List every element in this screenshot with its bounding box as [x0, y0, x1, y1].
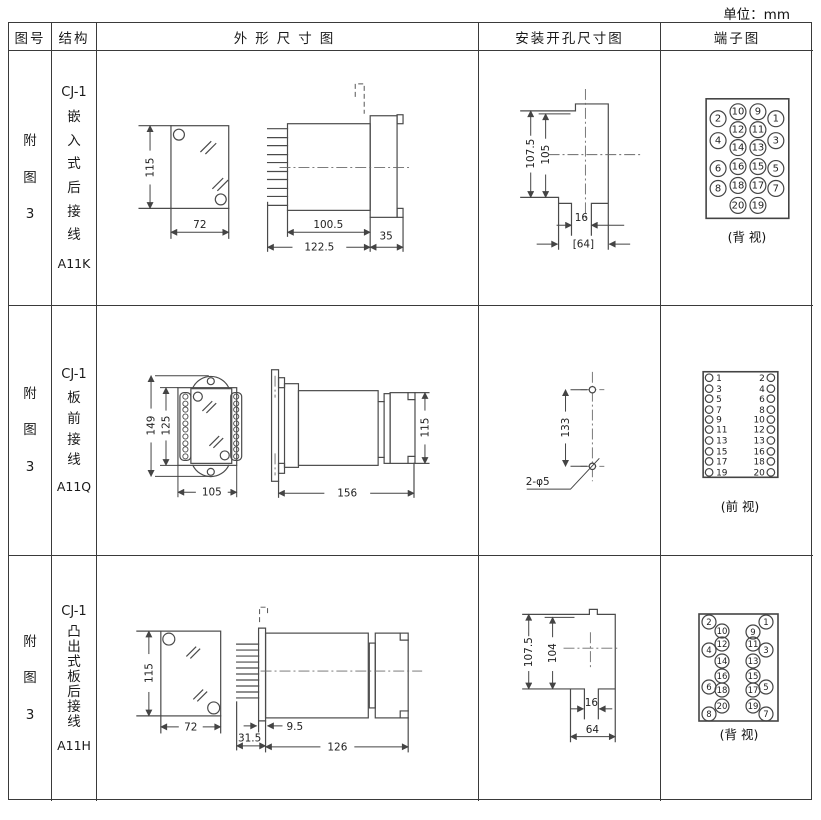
outline-cell-row3: 115 72 9.5 31.5 126: [97, 556, 479, 801]
dimensions: 107.5 105 16 [64]: [525, 111, 630, 251]
structure-cell-row3: CJ-1 凸出式板后接线 A11H: [52, 556, 97, 801]
structure-type: 凸出式板后接线: [66, 625, 82, 731]
svg-text:4: 4: [715, 136, 721, 147]
header-terminal: 端子图: [661, 23, 813, 51]
svg-text:6: 6: [759, 395, 765, 405]
svg-text:7: 7: [773, 183, 779, 194]
mounting-drawing-row3: 107.5 104 16 64: [479, 556, 660, 801]
structure-model: CJ-1: [61, 367, 86, 382]
dimensions: 115 72 100.5 122.5 35: [145, 126, 404, 254]
structure-type: 嵌入式后接线: [66, 106, 82, 248]
svg-text:10: 10: [732, 107, 745, 118]
view-caption: (前 视): [721, 499, 760, 514]
svg-text:11: 11: [748, 640, 759, 650]
svg-text:16: 16: [717, 672, 728, 682]
dim-outer: 107.5: [523, 637, 535, 667]
svg-text:7: 7: [763, 710, 768, 720]
dim-pin-length: 31.5: [238, 732, 261, 744]
svg-text:1: 1: [773, 114, 779, 125]
dim-width: 105: [202, 487, 222, 499]
unit-label: 单位：mm: [723, 3, 790, 23]
cutout-outline: [523, 609, 615, 741]
svg-text:9: 9: [750, 628, 755, 638]
dim-height: 115: [143, 663, 155, 683]
svg-text:3: 3: [773, 136, 779, 147]
mounting-cell-row1: 107.5 105 16 [64]: [479, 51, 661, 306]
mounting-cell-row3: 107.5 104 16 64: [479, 556, 661, 801]
terminal-cell-row1: 2 4 6 8 10 12 14 16 18 20 9 11 13 15 17 …: [661, 51, 813, 306]
terminal-strip-left: [183, 394, 188, 459]
structure-model: CJ-1: [61, 604, 86, 619]
svg-text:20: 20: [717, 702, 728, 712]
dim-gap: 9.5: [287, 721, 304, 733]
svg-text:16: 16: [753, 448, 765, 458]
front-view: [178, 376, 242, 476]
mounting-drawing-row2: 133 2-φ5: [479, 306, 660, 555]
structure-code: A11K: [58, 256, 91, 271]
terminals: 2 4 6 8 10 12 14 16 18 20 9 11 13 15 17 …: [710, 104, 784, 214]
figure-label: 附图3: [21, 376, 39, 485]
svg-text:13: 13: [716, 437, 727, 447]
terminals: 2 4 6 8 10 12 14 16 18 20 9 11 13 15 17 …: [702, 615, 773, 721]
header-figure: 图号: [9, 23, 52, 51]
svg-text:12: 12: [717, 640, 728, 650]
svg-text:18: 18: [732, 180, 745, 191]
pins: [268, 129, 288, 206]
svg-text:7: 7: [716, 406, 722, 416]
svg-text:20: 20: [732, 200, 745, 211]
outline-drawing-row3: 115 72 9.5 31.5 126: [97, 556, 478, 801]
header-structure: 结构: [52, 23, 97, 51]
structure-code: A11Q: [57, 479, 91, 494]
svg-text:1: 1: [716, 374, 722, 384]
svg-text:11: 11: [752, 125, 765, 136]
svg-text:15: 15: [752, 162, 765, 173]
dim-side-height: 115: [419, 418, 431, 438]
svg-text:10: 10: [753, 416, 765, 426]
terminal-diagram-row1: 2 4 6 8 10 12 14 16 18 20 9 11 13 15 17 …: [661, 51, 813, 305]
dim-slot: 16: [575, 212, 588, 224]
center-marks: [564, 632, 621, 668]
figure-label: 附图3: [21, 123, 39, 232]
svg-text:14: 14: [717, 657, 728, 667]
hole-spec: 2-φ5: [526, 476, 550, 488]
svg-text:6: 6: [715, 164, 721, 175]
svg-text:13: 13: [748, 657, 759, 667]
mounting-drawing-row1: 107.5 105 16 [64]: [479, 51, 660, 305]
dim-hole-spacing: 133: [560, 418, 572, 438]
dim-flange: 35: [379, 230, 392, 242]
terminal-cell-row3: 2 4 6 8 10 12 14 16 18 20 9 11 13 15 17 …: [661, 556, 813, 801]
structure-model: CJ-1: [61, 85, 86, 100]
handle-phantom: [260, 607, 268, 622]
svg-text:19: 19: [752, 200, 765, 211]
dim-cutout-width: [64]: [573, 239, 594, 251]
svg-text:17: 17: [752, 180, 765, 191]
mounting-cell-row2: 133 2-φ5: [479, 306, 661, 556]
dim-height: 115: [145, 158, 157, 178]
figure-cell-row1: 附图3: [9, 51, 52, 306]
svg-text:2: 2: [706, 618, 711, 628]
terminals: 12 34 56 78 910 1112 1313 1516 1718 1920: [705, 374, 774, 479]
svg-text:1: 1: [763, 618, 768, 628]
dim-width: 72: [184, 721, 197, 733]
side-view: [237, 628, 409, 752]
outline-drawing-row1: 115 72 100.5 122.5 35: [97, 51, 478, 305]
svg-text:9: 9: [755, 107, 761, 118]
outline-cell-row1: 115 72 100.5 122.5 35: [97, 51, 479, 306]
dim-depth-total: 122.5: [304, 242, 334, 254]
structure-cell-row1: CJ-1 嵌入式后接线 A11K: [52, 51, 97, 306]
svg-text:2: 2: [759, 374, 765, 384]
side-view: [272, 370, 429, 497]
dim-inner-height: 125: [160, 416, 172, 436]
dim-depth: 156: [337, 488, 357, 500]
svg-text:17: 17: [716, 458, 727, 468]
pins: [237, 644, 259, 698]
svg-text:5: 5: [773, 164, 779, 175]
svg-text:15: 15: [748, 672, 759, 682]
svg-text:5: 5: [716, 395, 722, 405]
svg-text:19: 19: [748, 702, 759, 712]
dim-outer-height: 149: [146, 416, 158, 436]
dimensions: 133 2-φ5: [526, 390, 600, 489]
header-mounting: 安装开孔尺寸图: [479, 23, 661, 51]
svg-text:9: 9: [716, 416, 722, 426]
svg-text:17: 17: [748, 686, 759, 696]
svg-text:4: 4: [706, 646, 711, 656]
structure-code: A11H: [57, 738, 91, 753]
dim-outer: 107.5: [525, 139, 537, 169]
svg-text:16: 16: [732, 162, 745, 173]
svg-text:3: 3: [763, 646, 768, 656]
svg-text:18: 18: [717, 686, 728, 696]
svg-text:13: 13: [753, 437, 764, 447]
cutout-outline: [521, 104, 609, 249]
svg-text:13: 13: [752, 143, 765, 154]
outline-drawing-row2: 149 125 105 115 156: [97, 306, 478, 555]
dim-inner: 105: [540, 145, 552, 165]
handle-phantom: [355, 84, 364, 114]
figure-cell-row2: 附图3: [9, 306, 52, 556]
figure-label: 附图3: [21, 624, 39, 733]
spec-table: 图号 结构 外形尺寸图 安装开孔尺寸图 端子图 附图3 CJ-1 嵌入式后接线 …: [8, 22, 812, 800]
svg-text:20: 20: [753, 469, 765, 479]
svg-text:12: 12: [753, 426, 764, 436]
svg-text:19: 19: [716, 469, 728, 479]
dim-slot: 16: [585, 697, 598, 709]
terminal-block: [699, 614, 778, 721]
figure-cell-row3: 附图3: [9, 556, 52, 801]
svg-text:5: 5: [763, 683, 768, 693]
svg-text:8: 8: [706, 710, 711, 720]
front-view: [139, 126, 229, 239]
structure-type: 板前接线: [66, 388, 82, 472]
view-caption: (背 视): [720, 727, 759, 742]
terminal-diagram-row2: 12 34 56 78 910 1112 1313 1516 1718 1920…: [661, 306, 813, 555]
svg-text:11: 11: [716, 426, 727, 436]
svg-text:10: 10: [717, 627, 728, 637]
svg-text:3: 3: [716, 385, 722, 395]
dimensions: 107.5 104 16 64: [523, 614, 615, 736]
svg-text:2: 2: [715, 114, 721, 125]
structure-cell-row2: CJ-1 板前接线 A11Q: [52, 306, 97, 556]
svg-text:4: 4: [759, 385, 765, 395]
svg-text:14: 14: [732, 143, 745, 154]
svg-text:12: 12: [732, 125, 745, 136]
dim-cutout-width: 64: [586, 724, 600, 736]
outline-cell-row2: 149 125 105 115 156: [97, 306, 479, 556]
svg-text:18: 18: [753, 458, 765, 468]
view-caption: (背 视): [728, 229, 767, 244]
terminal-cell-row2: 12 34 56 78 910 1112 1313 1516 1718 1920…: [661, 306, 813, 556]
svg-text:8: 8: [759, 406, 765, 416]
svg-text:15: 15: [716, 448, 727, 458]
datasheet-page: 单位：mm 图号 结构 外形尺寸图 安装开孔尺寸图 端子图 附图3 CJ-1 嵌…: [0, 0, 821, 820]
mount-hole-top: [589, 387, 595, 393]
svg-text:8: 8: [715, 183, 721, 194]
dim-depth-body: 100.5: [313, 219, 343, 231]
dim-inner: 104: [547, 643, 559, 663]
dim-depth: 126: [327, 741, 347, 753]
dim-width: 72: [193, 219, 206, 231]
dimensions: 149 125 105 115 156: [146, 376, 432, 500]
svg-text:6: 6: [706, 683, 711, 693]
header-outline: 外形尺寸图: [97, 23, 479, 51]
terminal-diagram-row3: 2 4 6 8 10 12 14 16 18 20 9 11 13 15 17 …: [661, 556, 813, 801]
